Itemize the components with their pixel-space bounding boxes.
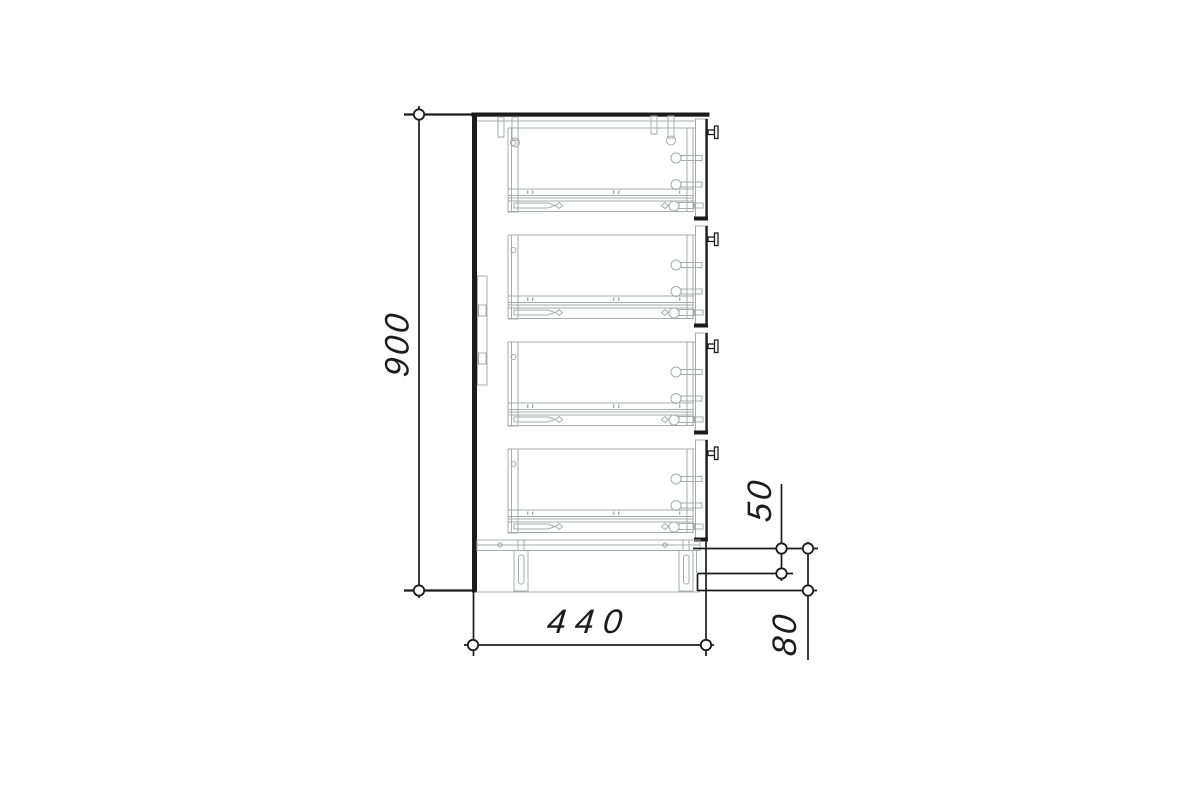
- bracket-outline: [478, 276, 488, 385]
- drawer-1: [508, 128, 703, 212]
- dim-plinth-height-label: 80: [766, 610, 804, 658]
- right-leg-foot: [684, 555, 690, 584]
- back-panel-bracket: [478, 276, 488, 385]
- dim-endpoint-marker-icon: [776, 543, 786, 553]
- cabinet-section-drawing: 900 440 50 80: [0, 0, 1200, 800]
- drawer-front-2: [694, 226, 718, 328]
- dimension-plinth-height: 80: [698, 542, 818, 660]
- dim-endpoint-marker-icon: [414, 109, 424, 119]
- dowel-icon: [651, 116, 657, 134]
- drawer-3: [508, 342, 703, 426]
- dim-endpoint-marker-icon: [776, 568, 786, 578]
- right-leg: [679, 551, 693, 592]
- dim-height-label: 900: [379, 309, 417, 379]
- dimension-slide-offset: 50: [693, 476, 818, 591]
- dim-endpoint-marker-icon: [468, 640, 478, 650]
- drawer-4: [508, 449, 703, 533]
- bracket-fitting-icon: [479, 305, 487, 316]
- left-leg: [514, 551, 528, 592]
- drawing-canvas: 900 440 50 80: [0, 0, 1200, 800]
- drawer-front-4: [694, 440, 718, 542]
- plinth: [476, 540, 700, 592]
- left-leg-foot: [519, 555, 525, 584]
- bracket-fitting-icon: [479, 353, 487, 364]
- dim-endpoint-marker-icon: [701, 640, 711, 650]
- cam-bolt-icon: [668, 116, 674, 138]
- cabinet: [472, 113, 719, 593]
- drawer-2: [508, 235, 703, 319]
- dim-endpoint-marker-icon: [414, 585, 424, 595]
- dowel-icon: [498, 117, 504, 137]
- back-panel: [472, 113, 477, 593]
- dim-endpoint-marker-icon: [803, 585, 813, 595]
- drawer-front-1: [694, 119, 718, 221]
- dim-slide-offset-label: 50: [741, 476, 779, 524]
- cam-bolt-head-icon: [667, 136, 676, 145]
- drawer-front-3: [694, 333, 718, 435]
- dimension-width: 440: [464, 540, 714, 656]
- dim-endpoint-marker-icon: [803, 543, 813, 553]
- dim-width-label: 440: [545, 603, 633, 641]
- dimension-height: 900: [379, 106, 473, 598]
